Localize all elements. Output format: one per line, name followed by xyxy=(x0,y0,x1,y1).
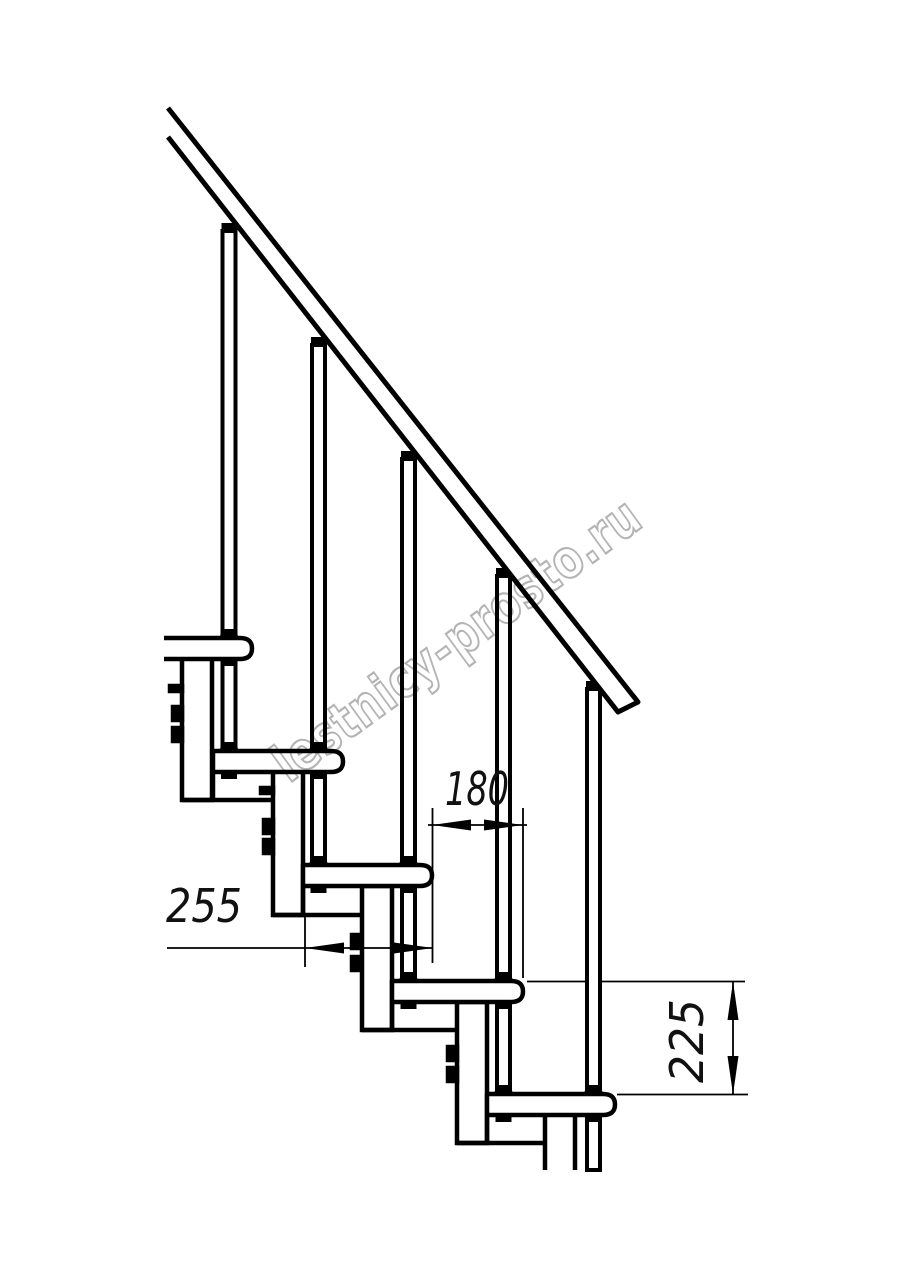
tread xyxy=(164,638,252,659)
bolt-tab xyxy=(173,707,182,720)
rod-nut xyxy=(221,772,237,779)
bolt-tab xyxy=(448,1068,457,1081)
tread xyxy=(487,1094,615,1115)
rod-nut xyxy=(311,772,327,779)
rod-nut xyxy=(311,886,327,893)
dim-label-225: 225 xyxy=(660,999,714,1083)
bolt-tab xyxy=(264,820,273,833)
dimension-180: 180 xyxy=(428,762,527,978)
baluster-rod xyxy=(223,231,236,772)
tread xyxy=(213,751,343,772)
arrowhead xyxy=(728,982,739,1021)
dim-label-255: 255 xyxy=(166,879,242,933)
rod-nut xyxy=(221,659,237,666)
rod-nut xyxy=(401,886,417,893)
tread xyxy=(303,865,432,886)
rod-nut xyxy=(496,1115,512,1122)
tread xyxy=(392,981,523,1002)
staircase-diagram: 180 255 225 xyxy=(0,0,914,1280)
baluster-rod xyxy=(402,459,415,1002)
arrowhead xyxy=(728,1056,739,1095)
arrowhead xyxy=(432,820,471,831)
bolt-tab xyxy=(352,935,361,948)
baluster-rod xyxy=(497,576,510,1115)
arrowhead xyxy=(305,943,344,954)
bolt-tab xyxy=(448,1047,457,1060)
rod-nut xyxy=(586,1115,602,1122)
dimension-225: 225 xyxy=(527,982,748,1095)
bolt-tab xyxy=(352,957,361,970)
rod-nut xyxy=(496,1002,512,1009)
rod-nut xyxy=(401,1002,417,1009)
dim-label-180: 180 xyxy=(445,762,509,816)
bolt-tab xyxy=(264,840,273,853)
bolt-tab xyxy=(173,728,182,741)
support-module xyxy=(545,1115,575,1170)
baluster-rod xyxy=(312,345,325,886)
technical-drawing-canvas: 180 255 225 lestnicy-prosto.ru xyxy=(0,0,914,1280)
